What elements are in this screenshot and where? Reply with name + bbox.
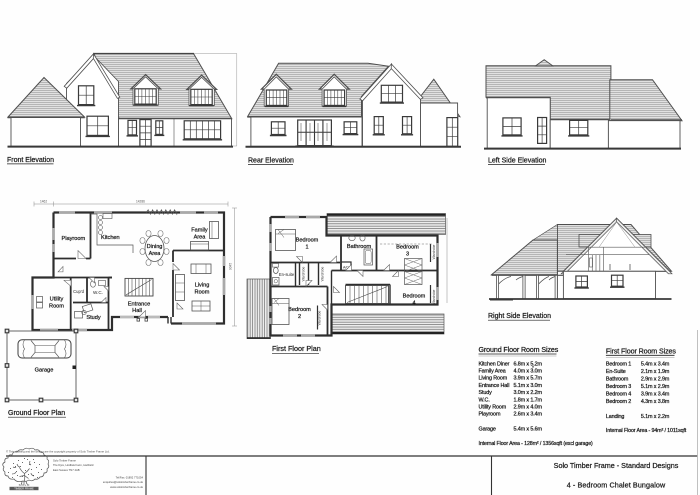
svg-text:Utility Room: Utility Room: [479, 405, 507, 411]
svg-text:Bedroom: Bedroom: [296, 238, 319, 244]
svg-text:Bedroom 4: Bedroom 4: [606, 392, 631, 398]
svg-text:4: 4: [412, 301, 415, 307]
svg-text:Bedroom: Bedroom: [396, 245, 419, 251]
svg-text:Bedroom 2: Bedroom 2: [606, 399, 631, 405]
svg-text:Tel/Fax: 01892 771054: Tel/Fax: 01892 771054: [116, 476, 144, 480]
svg-text:3.9m x 3.4m: 3.9m x 3.4m: [641, 392, 670, 398]
svg-text:4.3m x 3.8m: 4.3m x 3.8m: [641, 399, 670, 405]
svg-text:Entrance Hall: Entrance Hall: [479, 383, 510, 389]
svg-text:1: 1: [305, 245, 308, 251]
svg-text:Entrance: Entrance: [128, 302, 150, 308]
svg-text:TIMBER FRAME: TIMBER FRAME: [14, 487, 34, 491]
svg-text:Landing: Landing: [606, 414, 624, 420]
svg-text:Family Area: Family Area: [479, 369, 506, 375]
svg-text:Bedroom 3: Bedroom 3: [606, 384, 631, 390]
svg-text:Cup'd: Cup'd: [73, 289, 84, 294]
svg-text:2: 2: [298, 314, 301, 320]
svg-text:Ground Floor Room Sizes: Ground Floor Room Sizes: [479, 346, 559, 354]
svg-text:East Sussex TN7 4AB: East Sussex TN7 4AB: [53, 468, 80, 472]
svg-text:Wardrobe: Wardrobe: [318, 311, 322, 326]
svg-text:Solo Timber Frame - Standard D: Solo Timber Frame - Standard Designs: [554, 461, 679, 470]
svg-text:Internal Floor Area - 128m² /: Internal Floor Area - 128m² / 1356sqft (…: [479, 441, 594, 447]
svg-text:1.8m x 1.7m: 1.8m x 1.7m: [514, 397, 543, 403]
svg-text:Kitchen: Kitchen: [101, 235, 120, 241]
svg-text:Wardrobe: Wardrobe: [432, 245, 436, 260]
svg-text:Family: Family: [191, 228, 208, 234]
svg-text:www.solotimberframe.co.uk: www.solotimberframe.co.uk: [110, 485, 144, 489]
svg-text:En-suite: En-suite: [279, 272, 295, 277]
svg-text:Room: Room: [49, 304, 64, 310]
svg-text:Hall: Hall: [132, 308, 142, 314]
svg-text:Area: Area: [194, 235, 207, 241]
svg-text:Garage: Garage: [479, 427, 496, 433]
svg-text:Bathroom: Bathroom: [347, 244, 372, 250]
svg-text:Room: Room: [195, 290, 210, 296]
svg-text:W.C.: W.C.: [93, 290, 103, 295]
svg-text:Playroom: Playroom: [62, 236, 86, 242]
svg-text:Living: Living: [195, 283, 210, 289]
svg-text:5.1m x 3.0m: 5.1m x 3.0m: [514, 383, 543, 389]
svg-text:5.1m x 2.2m: 5.1m x 2.2m: [641, 414, 670, 420]
svg-text:S O L O: S O L O: [19, 483, 30, 487]
svg-text:Rear Elevation: Rear Elevation: [248, 158, 294, 165]
svg-text:Study: Study: [479, 390, 493, 396]
svg-text:Area: Area: [149, 251, 162, 257]
svg-text:Utility: Utility: [50, 297, 64, 303]
svg-text:W.C.: W.C.: [479, 397, 490, 403]
svg-text:9045: 9045: [229, 263, 233, 270]
svg-text:1462: 1462: [40, 200, 47, 204]
svg-text:Kitchen Diner: Kitchen Diner: [479, 361, 510, 367]
svg-text:Dining: Dining: [147, 244, 163, 250]
svg-text:Left Side Elevation: Left Side Elevation: [488, 158, 546, 165]
svg-text:Playroom: Playroom: [479, 412, 501, 418]
svg-text:2.9m x 2.9m: 2.9m x 2.9m: [641, 377, 670, 383]
svg-text:Internal Floor Area - 94m² / 1: Internal Floor Area - 94m² / 1011sqft: [606, 428, 687, 434]
svg-text:4 - Bedroom Chalet Bungalow: 4 - Bedroom Chalet Bungalow: [567, 481, 666, 490]
svg-text:2.6m x 3.4m: 2.6m x 3.4m: [514, 412, 543, 418]
svg-text:Bathroom: Bathroom: [606, 377, 629, 383]
svg-text:Front Elevation: Front Elevation: [7, 157, 54, 164]
svg-text:Bedroom 1: Bedroom 1: [606, 362, 631, 368]
svg-text:14286: 14286: [136, 200, 145, 204]
svg-text:5.4m x 3.4m: 5.4m x 3.4m: [641, 362, 670, 368]
svg-text:4.0m x 3.0m: 4.0m x 3.0m: [514, 369, 543, 375]
svg-text:Garage: Garage: [35, 368, 54, 374]
svg-text:3: 3: [406, 252, 409, 258]
svg-text:enquiries@solotimberframe.co.u: enquiries@solotimberframe.co.uk: [103, 480, 144, 484]
svg-text:6.8m x 5.2m: 6.8m x 5.2m: [514, 361, 543, 367]
svg-text:3.9m x 5.7m: 3.9m x 5.7m: [514, 376, 543, 382]
svg-text:En-Suite: En-Suite: [606, 369, 626, 375]
svg-text:2.1m x 1.9m: 2.1m x 1.9m: [641, 369, 670, 375]
svg-text:3.0m x 2.2m: 3.0m x 2.2m: [514, 390, 543, 396]
svg-text:Study: Study: [86, 315, 101, 321]
svg-text:Living Room: Living Room: [479, 376, 508, 382]
svg-text:5.1m x 2.9m: 5.1m x 2.9m: [641, 384, 670, 390]
svg-text:The Dyre, Hodfats Farm, Hartfi: The Dyre, Hodfats Farm, Hartfield: [53, 463, 94, 467]
svg-text:Solo Timber Frame: Solo Timber Frame: [53, 459, 76, 463]
svg-text:Right Side Elevation: Right Side Elevation: [488, 313, 551, 320]
svg-text:Bedroom: Bedroom: [288, 307, 311, 313]
svg-text:2.9m x 4.0m: 2.9m x 4.0m: [514, 405, 543, 411]
svg-text:First Floor Room Sizes: First Floor Room Sizes: [606, 347, 676, 355]
svg-text:Wardrobe: Wardrobe: [432, 290, 436, 305]
svg-text:5.4m x 5.6m: 5.4m x 5.6m: [514, 427, 543, 433]
svg-text:Wardrobe: Wardrobe: [302, 267, 306, 282]
svg-text:Wardrobe: Wardrobe: [321, 267, 325, 282]
svg-text:Bedroom: Bedroom: [403, 294, 426, 300]
svg-text:First Floor Plan: First Floor Plan: [272, 344, 321, 353]
svg-text:Ground Floor Plan: Ground Floor Plan: [8, 410, 65, 417]
